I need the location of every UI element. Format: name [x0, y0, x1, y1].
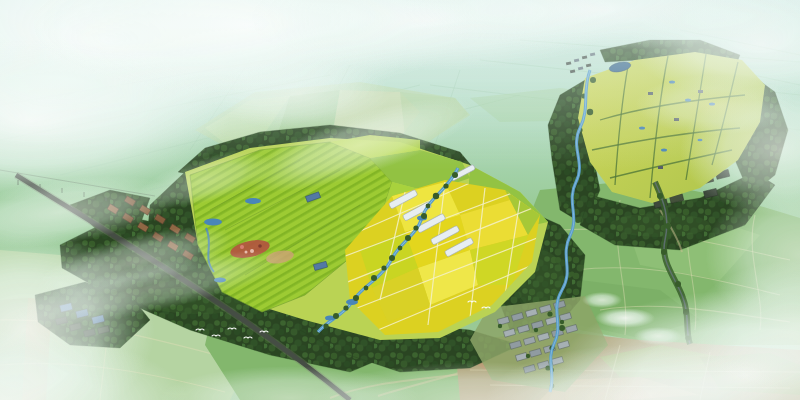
atmosphere-tint — [0, 0, 800, 400]
aerial-landscape-rendering — [0, 0, 800, 400]
landscape-svg — [0, 0, 800, 400]
